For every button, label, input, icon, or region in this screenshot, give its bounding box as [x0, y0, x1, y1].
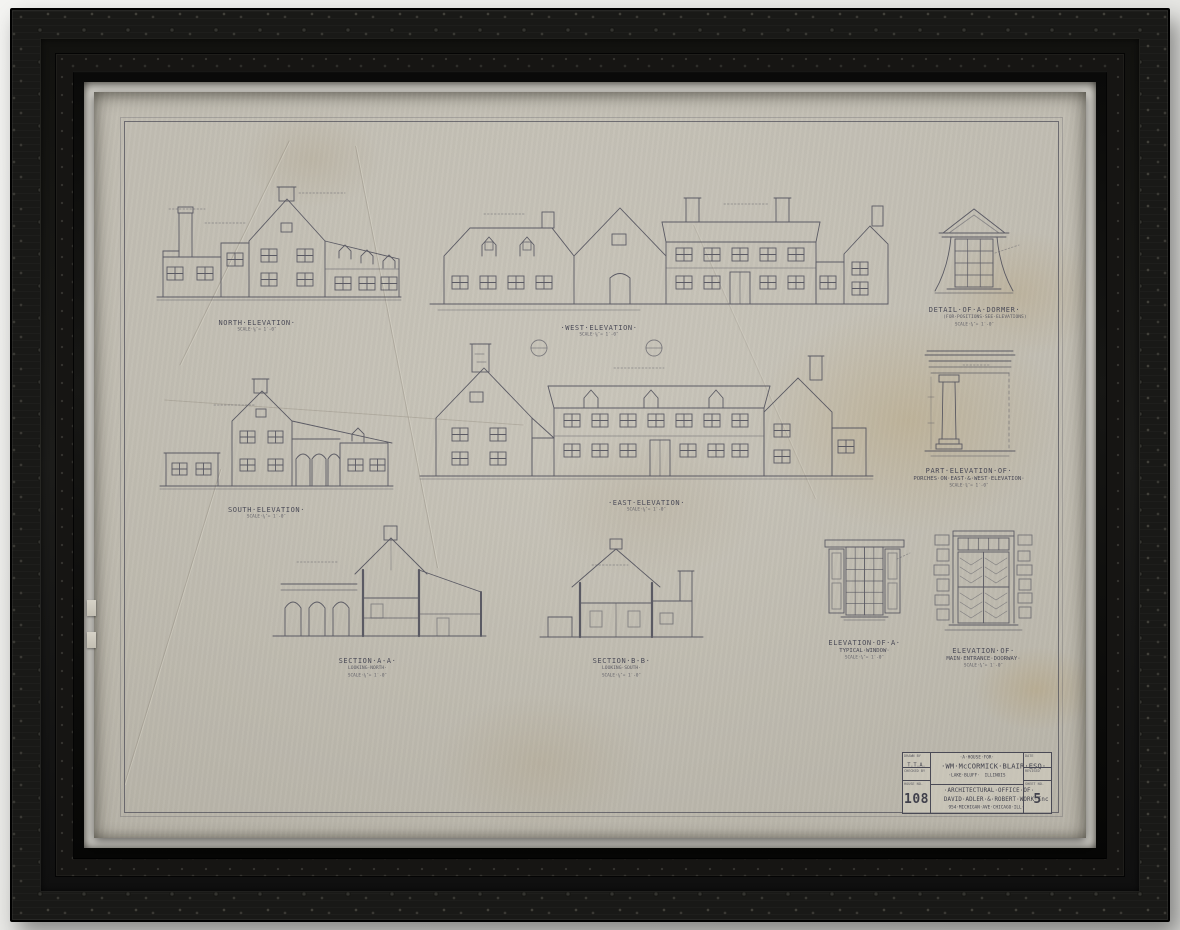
mat: NORTH·ELEVATION· SCALE·⅛″= 1′-0″ [84, 82, 1096, 848]
dormer-detail-drawing [927, 201, 1022, 301]
porch-elevation-drawing [919, 337, 1019, 462]
figure-dormer-detail: DETAIL·OF·A·DORMER· (FOR·POSITIONS·SEE·E… [927, 201, 1022, 330]
figure-scale: SCALE·⅛″= 1′-0″ [567, 673, 676, 678]
figure-scale: SCALE·⅛″= 1′-0″ [191, 514, 343, 519]
drawn-by-label: DRAWN BY [904, 754, 917, 758]
frame-inner-band: NORTH·ELEVATION· SCALE·⅛″= 1′-0″ [40, 38, 1140, 892]
figure-title: SOUTH·ELEVATION· [144, 506, 389, 514]
drawn-by-cell: DRAWN BY T.T.A. [903, 753, 930, 768]
firm-line-2: DAVID·ADLER·&·ROBERT·WORK·Inc [944, 796, 1010, 802]
date-label: DATE [1025, 754, 1038, 758]
architect-section: ·ARCHITECTURAL·OFFICE·OF· DAVID·ADLER·&·… [931, 785, 1023, 813]
figure-title: SECTION·A-A· [255, 657, 480, 665]
typical-window-drawing [817, 529, 912, 634]
figure-typical-window: ELEVATION·OF·A· TYPICAL·WINDOW· SCALE·¾″… [817, 529, 912, 663]
project-town: ·LAKE·BLUFF· [948, 773, 979, 778]
title-block-left-column: DRAWN BY T.T.A. CHECKED BY HOUSE NO. 108 [903, 753, 931, 813]
figure-scale: SCALE·¾″= 1′-0″ [919, 483, 1018, 488]
house-number-value: 108 [903, 792, 930, 807]
figure-title: ELEVATION·OF·A· [817, 639, 912, 647]
figure-note: LOOKING·NORTH· [293, 665, 442, 670]
revised-label: REVISED [1025, 769, 1038, 773]
figure-note: (FOR·POSITIONS·SEE·ELEVATIONS) [943, 314, 1006, 319]
title-block-right-column: DATE REVISED SHEET NO. 5 [1023, 753, 1051, 813]
figure-note: LOOKING·SOUTH· [564, 665, 680, 670]
west-elevation-drawing [424, 184, 894, 319]
figure-porch-elevation: PART·ELEVATION·OF· PORCHES·ON·EAST·&·WES… [919, 337, 1019, 491]
figure-section-b: SECTION·B-B· LOOKING·SOUTH· SCALE·⅛″= 1′… [534, 537, 709, 681]
frame-carved-band: NORTH·ELEVATION· SCALE·⅛″= 1′-0″ [55, 53, 1125, 877]
figure-subtitle: TYPICAL·WINDOW· [827, 647, 903, 653]
checked-by-cell: CHECKED BY [903, 768, 930, 781]
figure-scale: SCALE·¾″= 1′-0″ [835, 655, 894, 660]
title-block-center-column: ·A·HOUSE·FOR· ·WM·McCORMICK·BLAIR·ESQ· ·… [931, 753, 1023, 813]
south-elevation-drawing [154, 371, 399, 501]
figure-scale: SCALE·¾″= 1′-0″ [945, 322, 1004, 327]
paper-tape-tab [87, 600, 96, 616]
sheet-number-label: SHEET NO. [1025, 782, 1038, 786]
title-block: DRAWN BY T.T.A. CHECKED BY HOUSE NO. 108 [902, 752, 1052, 814]
sheet-number-cell: SHEET NO. 5 [1024, 781, 1051, 813]
figure-main-doorway: ELEVATION·OF· MAIN·ENTRANCE·DOORWAY· SCA… [931, 517, 1036, 671]
figure-scale: SCALE·⅛″= 1′-0″ [298, 673, 438, 678]
date-cell: DATE [1024, 753, 1051, 768]
firm-line-1: ·ARCHITECTURAL·OFFICE·OF· [944, 787, 1010, 793]
figure-subtitle: MAIN·ENTRANCE·DOORWAY· [942, 655, 1026, 661]
figure-section-a: SECTION·A-A· LOOKING·NORTH· SCALE·⅛″= 1′… [267, 522, 492, 681]
sheet-number-value: 5 [1024, 792, 1051, 807]
house-number-cell: HOUSE NO. 108 [903, 781, 930, 813]
project-prefix: ·A·HOUSE·FOR· [949, 755, 1004, 760]
figure-scale: SCALE·¾″= 1′-0″ [951, 663, 1016, 668]
figure-east-elevation: ·EAST·ELEVATION· SCALE·⅛″= 1′-0″ [414, 334, 879, 515]
frame-lip: NORTH·ELEVATION· SCALE·⅛″= 1′-0″ [73, 71, 1107, 859]
house-number-label: HOUSE NO. [904, 782, 917, 786]
firm-city: CHICAGO·ILL· [993, 805, 1024, 810]
figure-title: ·WEST·ELEVATION· [364, 324, 834, 332]
figure-scale: SCALE·⅛″= 1′-0″ [176, 327, 337, 332]
section-a-drawing [267, 522, 492, 652]
figure-subtitle: PORCHES·ON·EAST·&·WEST·ELEVATION· [905, 475, 1033, 481]
checked-by-label: CHECKED BY [904, 769, 917, 773]
figure-title: NORTH·ELEVATION· [127, 319, 387, 327]
paper-tape-tab [87, 632, 96, 648]
blueprint-sheet: NORTH·ELEVATION· SCALE·⅛″= 1′-0″ [94, 92, 1086, 838]
drawn-by-value: T.T.A. [907, 762, 926, 768]
client-name: ·WM·McCORMICK·BLAIR·ESQ· [941, 763, 1013, 771]
north-elevation-drawing [149, 179, 409, 314]
figure-south-elevation: SOUTH·ELEVATION· SCALE·⅛″= 1′-0″ [154, 371, 399, 522]
section-b-drawing [534, 537, 709, 652]
firm-address: 954·MICHIGAN·AVE· [948, 805, 992, 810]
figure-title: DETAIL·OF·A·DORMER· [927, 306, 1022, 314]
figure-west-elevation: ·WEST·ELEVATION· SCALE·⅛″= 1′-0″ [424, 184, 894, 340]
figure-scale: SCALE·⅛″= 1′-0″ [502, 507, 790, 512]
figure-title: ELEVATION·OF· [931, 647, 1036, 655]
revised-cell: REVISED [1024, 768, 1051, 781]
figure-title: SECTION·B-B· [534, 657, 709, 665]
photo-background: NORTH·ELEVATION· SCALE·⅛″= 1′-0″ [0, 0, 1180, 930]
project-title-section: ·A·HOUSE·FOR· ·WM·McCORMICK·BLAIR·ESQ· ·… [931, 753, 1023, 785]
main-doorway-drawing [931, 517, 1036, 642]
figure-title: PART·ELEVATION·OF· [889, 467, 1049, 475]
project-state: ILLINOIS [985, 773, 1006, 778]
figure-title: ·EAST·ELEVATION· [414, 499, 879, 507]
figure-north-elevation: NORTH·ELEVATION· SCALE·⅛″= 1′-0″ [149, 179, 409, 335]
ornate-picture-frame: NORTH·ELEVATION· SCALE·⅛″= 1′-0″ [10, 8, 1170, 922]
east-elevation-drawing [414, 334, 879, 494]
